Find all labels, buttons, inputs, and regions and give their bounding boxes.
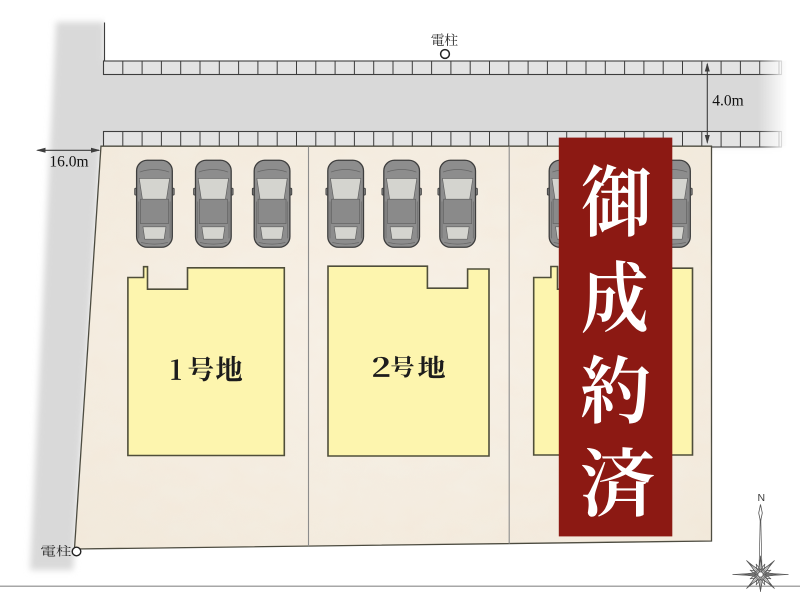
svg-text:N: N bbox=[758, 492, 766, 504]
svg-text:4.0m: 4.0m bbox=[712, 93, 743, 110]
svg-text:16.0m: 16.0m bbox=[49, 154, 88, 171]
